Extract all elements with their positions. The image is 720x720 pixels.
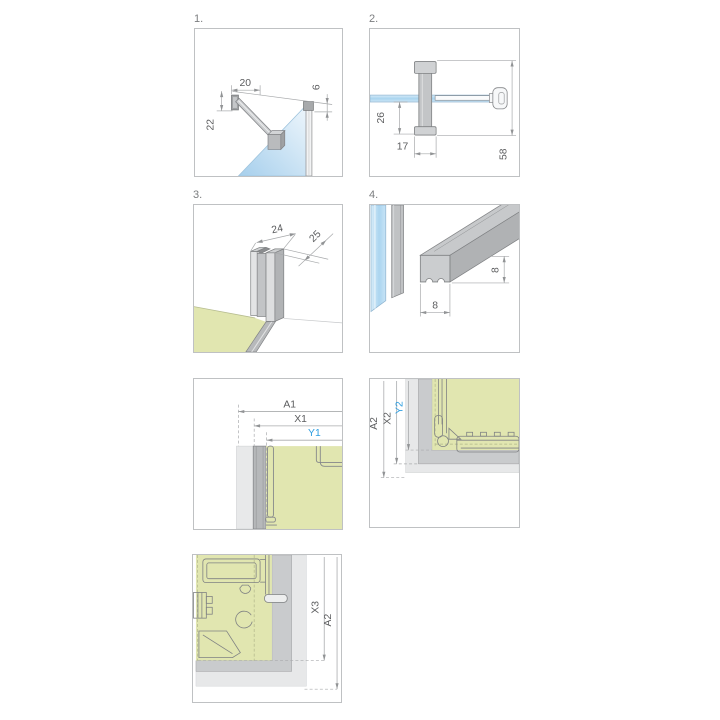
dim-8-height-label: 8: [490, 267, 501, 273]
panel-2-bar-top-view: 26 17 58: [369, 28, 520, 177]
wall-bracket-right: [304, 102, 314, 111]
panel-4-seal-profile: 8 8: [369, 204, 520, 353]
panel-1-number: 1.: [194, 13, 203, 25]
u-wall-profile: [251, 247, 284, 321]
support-rod: [435, 96, 490, 101]
dim-a2-label: A2: [370, 417, 380, 430]
panel-3-wall-profile: 24 25: [193, 204, 343, 353]
dim-26-label: 26: [376, 112, 387, 124]
dim-a2-label: A2: [323, 614, 334, 627]
dim-y1-label: Y1: [308, 428, 321, 439]
panel-6-plan-a2: A2 X2 Y2: [369, 378, 520, 528]
dim-a1-label: A1: [283, 400, 296, 411]
dim-22-label: 22: [206, 119, 217, 131]
panel-2-number: 2.: [369, 13, 378, 25]
glass-panel-edge: [371, 205, 386, 312]
support-bar: [236, 98, 275, 138]
dim-58-label: 58: [499, 148, 510, 160]
tray-surface: [196, 555, 272, 661]
wall-mount-end: [489, 88, 507, 109]
dimension-lines: [384, 381, 409, 478]
dimension-arrows: [323, 655, 339, 690]
glass-edge-profile: [306, 108, 312, 176]
wall-strip: [236, 446, 253, 529]
dim-25-label: 25: [308, 229, 324, 245]
glass-profile-bar: [392, 205, 404, 298]
dim-x1-label: X1: [294, 414, 307, 425]
dim-x2-label: X2: [383, 412, 394, 425]
dim-24-label: 24: [271, 223, 285, 236]
dim-6-label: 6: [311, 84, 322, 90]
panel-7-plan-x3: X3 A2: [192, 554, 342, 703]
dim-x3-label: X3: [310, 601, 321, 614]
wall-profile-strip: [253, 446, 266, 529]
diagram-sheet: { "title": "Installation dimension diagr…: [0, 0, 720, 720]
dim-y2-label: Y2: [395, 401, 406, 414]
panel-3-number: 3.: [193, 189, 202, 201]
panel-5-plan-a1: A1 X1 Y1: [193, 378, 343, 530]
tray-surface: [432, 379, 519, 450]
dim-20-label: 20: [240, 78, 252, 89]
panel-4-number: 4.: [369, 189, 378, 201]
floor-line: [284, 318, 342, 322]
dim-8-width-label: 8: [432, 301, 438, 312]
glass-clamp: [268, 131, 285, 150]
dim-17-label: 17: [397, 141, 409, 152]
panel-1-support-bar-detail: 20 22 6: [194, 28, 343, 177]
shower-tray-plan: [266, 446, 342, 529]
